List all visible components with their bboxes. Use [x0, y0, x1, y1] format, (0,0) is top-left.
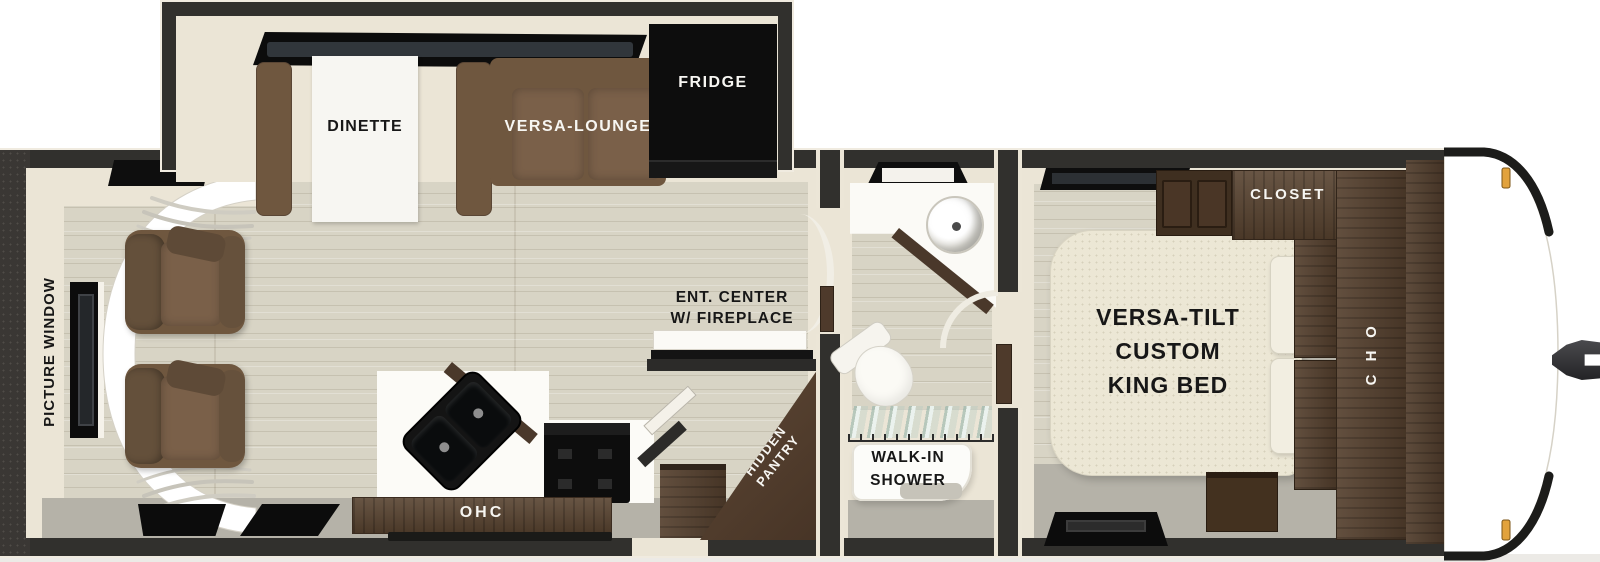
- cabinet-door-2: [1197, 180, 1227, 228]
- ent-center-wall-stub: [647, 359, 819, 371]
- shower-curtain-rod: [848, 440, 994, 442]
- kitchen-floor-mat: [388, 532, 612, 541]
- dinette-label: DINETTE: [312, 118, 418, 136]
- bath-bottom-floor: [848, 500, 994, 538]
- wall-living-bath-top: [816, 150, 844, 208]
- front-cap: [1444, 146, 1570, 562]
- ent-center-label-line1: ENT. CENTER: [644, 287, 820, 308]
- stove-control-panel: [544, 423, 630, 435]
- bottom-window-1: [138, 504, 226, 536]
- ohc-label-bedroom: OHC: [1360, 320, 1384, 392]
- walk-in-shower-label: WALK-IN SHOWER: [842, 446, 974, 492]
- stove-burner-2: [598, 449, 612, 459]
- headboard-cabinet-1: [1294, 224, 1338, 358]
- shower-label-line2: SHOWER: [842, 469, 974, 492]
- fridge: [649, 24, 777, 178]
- recliner-chair-2: [125, 364, 245, 468]
- picture-window-drape: [60, 168, 260, 540]
- headboard-cabinet-2: [1294, 360, 1338, 490]
- versa-lounge-label: VERSA-LOUNGE: [490, 118, 666, 136]
- floorplan: PICTURE WINDOW DINETTE: [0, 0, 1600, 562]
- marker-light-bottom: [1502, 520, 1510, 540]
- ent-center-label: ENT. CENTER W/ FIREPLACE: [644, 287, 820, 329]
- bedroom-door: [996, 344, 1012, 404]
- picture-window-label: PICTURE WINDOW: [40, 244, 60, 460]
- bedroom-window-bottom: [1044, 512, 1168, 546]
- bed-label-line1: VERSA-TILT: [1058, 300, 1278, 334]
- bath-skylight-glass: [882, 168, 954, 182]
- closet-label: CLOSET: [1232, 186, 1344, 203]
- chair-backrest: [125, 368, 165, 464]
- shower-label-line1: WALK-IN: [842, 446, 974, 469]
- bath-entry-door: [820, 286, 834, 332]
- bed-label: VERSA-TILT CUSTOM KING BED: [1058, 300, 1278, 402]
- tv-strip: [651, 350, 813, 359]
- marker-light-top: [1502, 168, 1510, 188]
- closet: [1232, 170, 1344, 240]
- bed-label-line2: CUSTOM: [1058, 334, 1278, 368]
- ent-center-label-line2: W/ FIREPLACE: [644, 308, 820, 329]
- fridge-front-edge: [649, 160, 777, 178]
- dinette-bench-left: [256, 62, 292, 216]
- entry-threshold: [632, 538, 708, 556]
- chair-backrest: [125, 234, 165, 330]
- stove: [544, 423, 630, 503]
- stove-burner-3: [558, 479, 572, 489]
- bedroom-overhead-cabinet: [1156, 170, 1232, 236]
- dinette-bench-right: [456, 62, 492, 216]
- wall-bath-bedroom-top: [994, 150, 1022, 292]
- cabinet-door-1: [1162, 180, 1192, 228]
- stove-burner-4: [598, 479, 612, 489]
- dinette-table: [312, 56, 418, 222]
- ohc-label-kitchen: OHC: [352, 504, 612, 522]
- ent-center-console: [653, 330, 807, 350]
- recliner-chair-1: [125, 230, 245, 334]
- slide-out-window-glass: [267, 42, 633, 57]
- stove-burner-1: [558, 449, 572, 459]
- bath-sink-drain: [952, 222, 961, 231]
- bedroom-window-bottom-glass: [1066, 520, 1146, 532]
- fridge-label: FRIDGE: [649, 74, 777, 92]
- bed-label-line3: KING BED: [1058, 368, 1278, 402]
- nightstand: [1206, 472, 1278, 532]
- wall-bath-bedroom-bottom: [994, 408, 1022, 556]
